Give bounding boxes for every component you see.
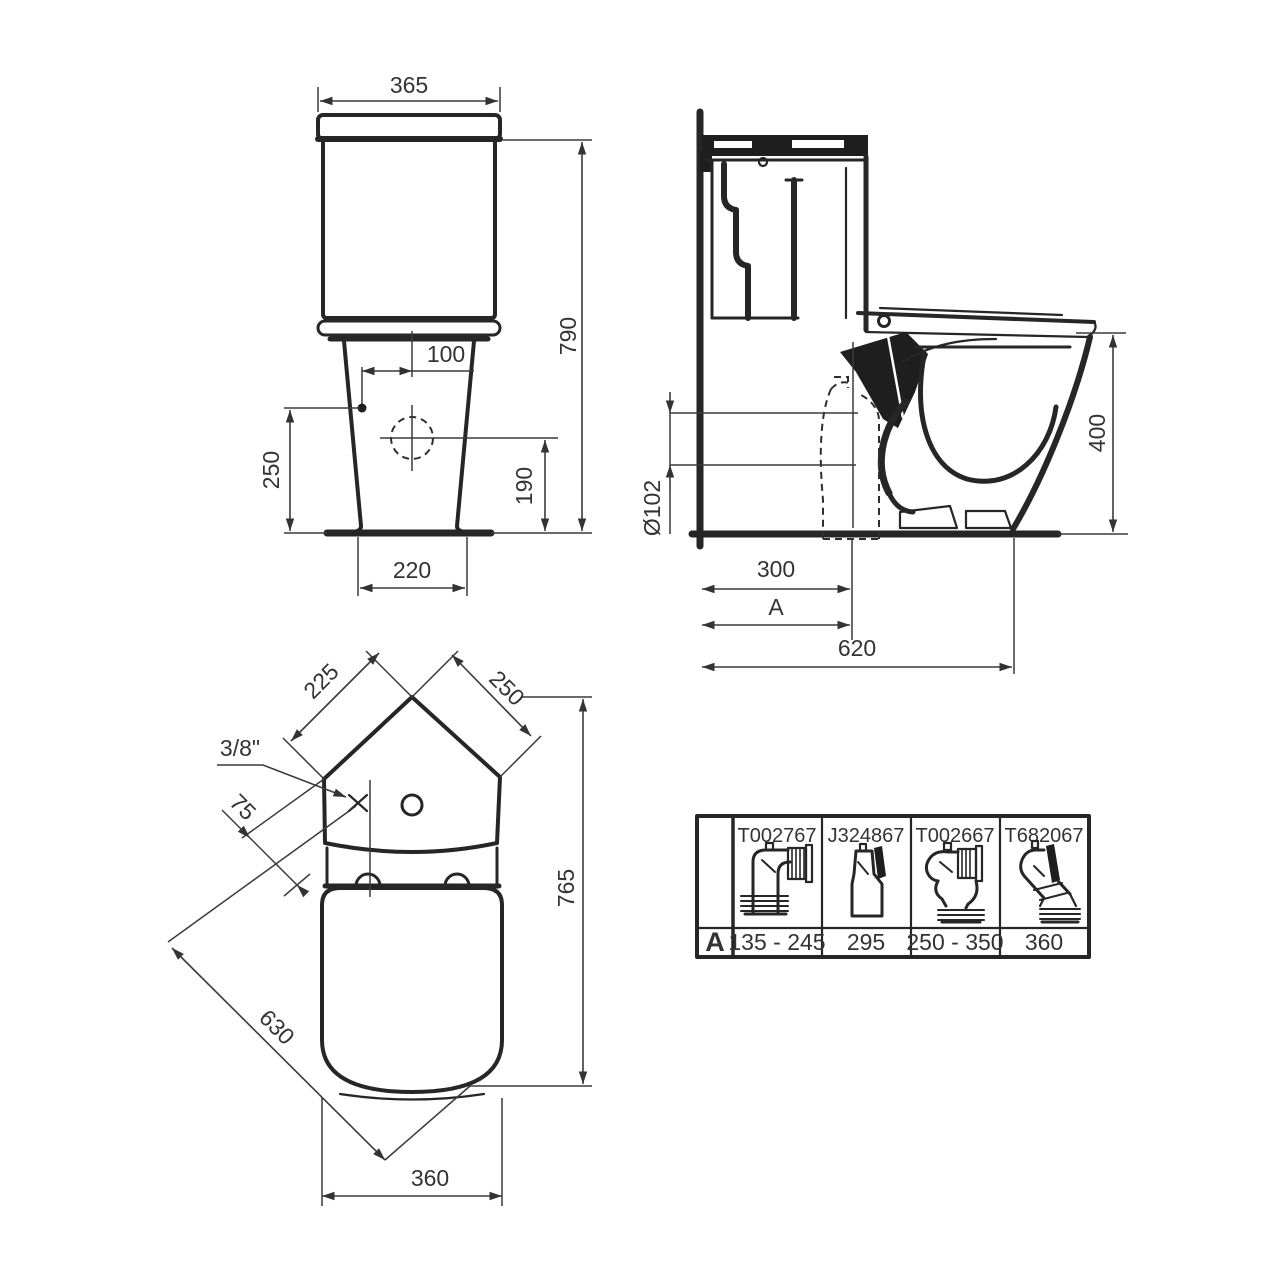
range-value-1: 135 - 245: [728, 929, 825, 955]
arrow-75-b: [297, 885, 309, 897]
adapter-table: A T002767 J324867 T002667 T682067 135 - …: [697, 816, 1089, 957]
part-number-4: T682067: [1005, 825, 1084, 847]
pipe-adapter-straight-icon: [852, 844, 886, 916]
seat-band: [318, 321, 500, 335]
seat-outline: [322, 888, 502, 1092]
dim-line-630: [172, 948, 385, 1160]
table-row-label: A: [705, 927, 725, 957]
pedestal-right: [457, 341, 474, 526]
dim-100: 100: [427, 341, 465, 367]
fill-valve-pipe: [724, 164, 748, 318]
side-view: Ø102 300 A 620 400: [639, 112, 1128, 674]
seat-outer-edge: [340, 1094, 484, 1100]
dim-365: 365: [390, 72, 428, 98]
trap-foot: [889, 493, 913, 512]
dim-inlet-size: 3/8": [220, 735, 260, 761]
lid-slit-left: [714, 141, 752, 148]
part-number-1: T002767: [738, 825, 817, 847]
inlet-leader: [217, 765, 346, 797]
dim-765: 765: [553, 869, 579, 907]
bowl-cup: [921, 355, 1056, 481]
dim-360: 360: [411, 1165, 449, 1191]
dim-250: 250: [258, 451, 284, 489]
tank-top-outline: [324, 697, 500, 852]
range-value-2: 295: [847, 929, 885, 955]
dim-790: 790: [555, 317, 581, 355]
top-view: 225 250 3/8" 75 765 630 360: [168, 651, 592, 1206]
diagonal-extension-front: [385, 1086, 470, 1160]
lid-slit-right: [792, 140, 844, 148]
hidden-outlet-pipe: [821, 377, 879, 539]
linear-extensions: [322, 697, 592, 1206]
pipe-adapter-elbow-icon: [741, 843, 812, 914]
pedestal-left: [344, 341, 361, 526]
seat-hinge: [879, 316, 890, 327]
dim-630: 630: [254, 1004, 300, 1050]
front-view: 365 790 100 250 190 220: [258, 72, 592, 596]
cistern-lid: [318, 115, 500, 139]
pipe-adapter-sbend-icon: [926, 843, 984, 922]
pipe-adapter-angled-icon: [1021, 841, 1080, 922]
technical-drawing-page: 365 790 100 250 190 220: [0, 0, 1280, 1280]
dim-190: 190: [511, 467, 537, 505]
dim-outlet-diameter: Ø102: [639, 480, 665, 536]
flush-button-hole: [402, 795, 422, 815]
dim-line-225: [291, 653, 379, 741]
part-number-3: T002667: [916, 825, 995, 847]
wc-dimension-drawing: 365 790 100 250 190 220: [0, 0, 1280, 1280]
dim-225: 225: [298, 658, 344, 704]
range-value-4: 360: [1025, 929, 1063, 955]
cistern-body: [323, 140, 495, 318]
dim-A: A: [768, 594, 784, 620]
foot-pad-2: [966, 511, 1011, 528]
dim-250: 250: [484, 665, 530, 711]
dim-75: 75: [225, 789, 261, 825]
range-value-3: 250 - 350: [906, 929, 1003, 955]
dim-300: 300: [757, 556, 795, 582]
dim-400: 400: [1084, 414, 1110, 452]
dim-220: 220: [393, 557, 431, 583]
dim-620: 620: [838, 635, 876, 661]
